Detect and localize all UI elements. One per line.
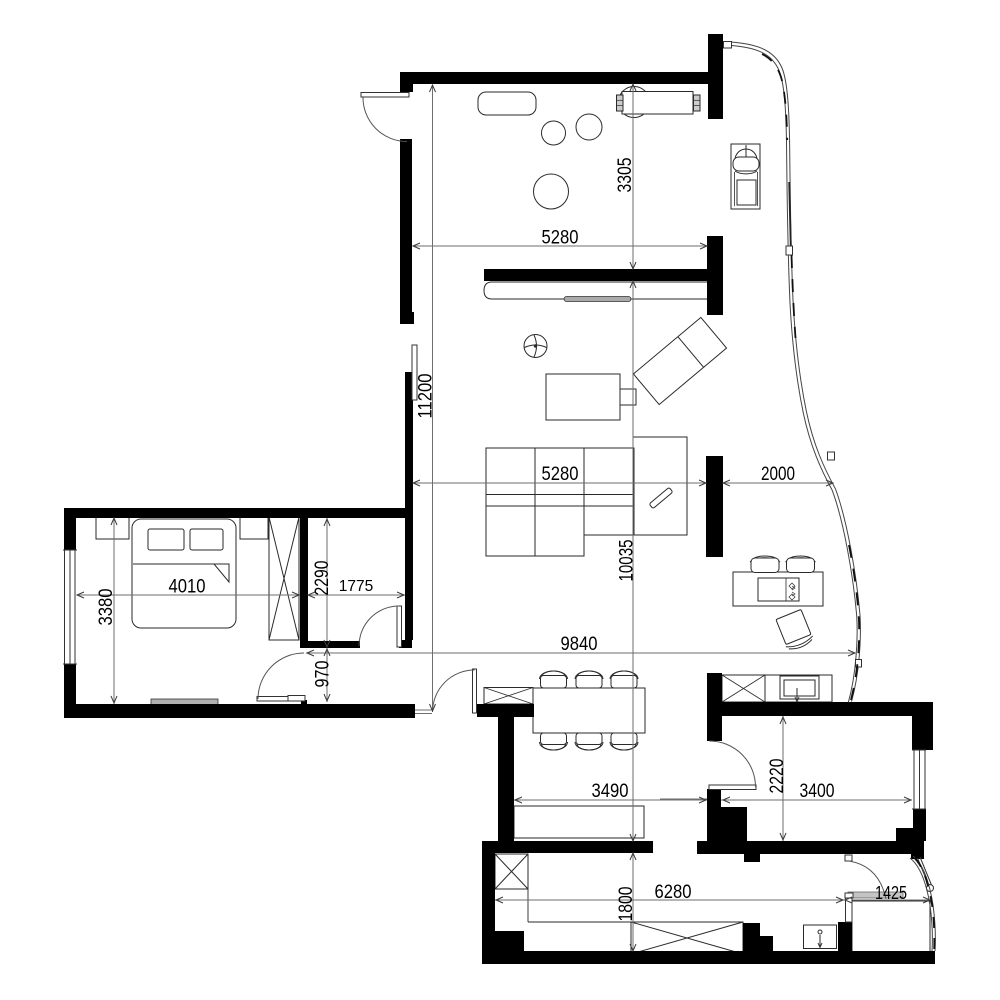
- svg-text:11200: 11200: [415, 373, 437, 418]
- svg-text:1800: 1800: [615, 886, 637, 921]
- svg-text:2220: 2220: [766, 758, 788, 793]
- svg-text:6280: 6280: [655, 881, 692, 903]
- svg-text:5280: 5280: [542, 463, 579, 485]
- svg-text:1425: 1425: [875, 882, 907, 903]
- svg-text:3400: 3400: [800, 780, 835, 802]
- svg-text:9840: 9840: [561, 633, 598, 655]
- svg-text:1775: 1775: [339, 578, 373, 595]
- svg-text:3490: 3490: [592, 780, 629, 802]
- svg-text:4010: 4010: [169, 576, 206, 598]
- svg-text:3305: 3305: [614, 157, 636, 192]
- svg-text:2000: 2000: [761, 463, 795, 485]
- svg-text:10035: 10035: [616, 539, 638, 581]
- svg-text:2290: 2290: [311, 560, 333, 595]
- svg-text:3380: 3380: [95, 588, 117, 625]
- svg-text:970: 970: [312, 660, 334, 687]
- svg-text:5280: 5280: [542, 227, 579, 249]
